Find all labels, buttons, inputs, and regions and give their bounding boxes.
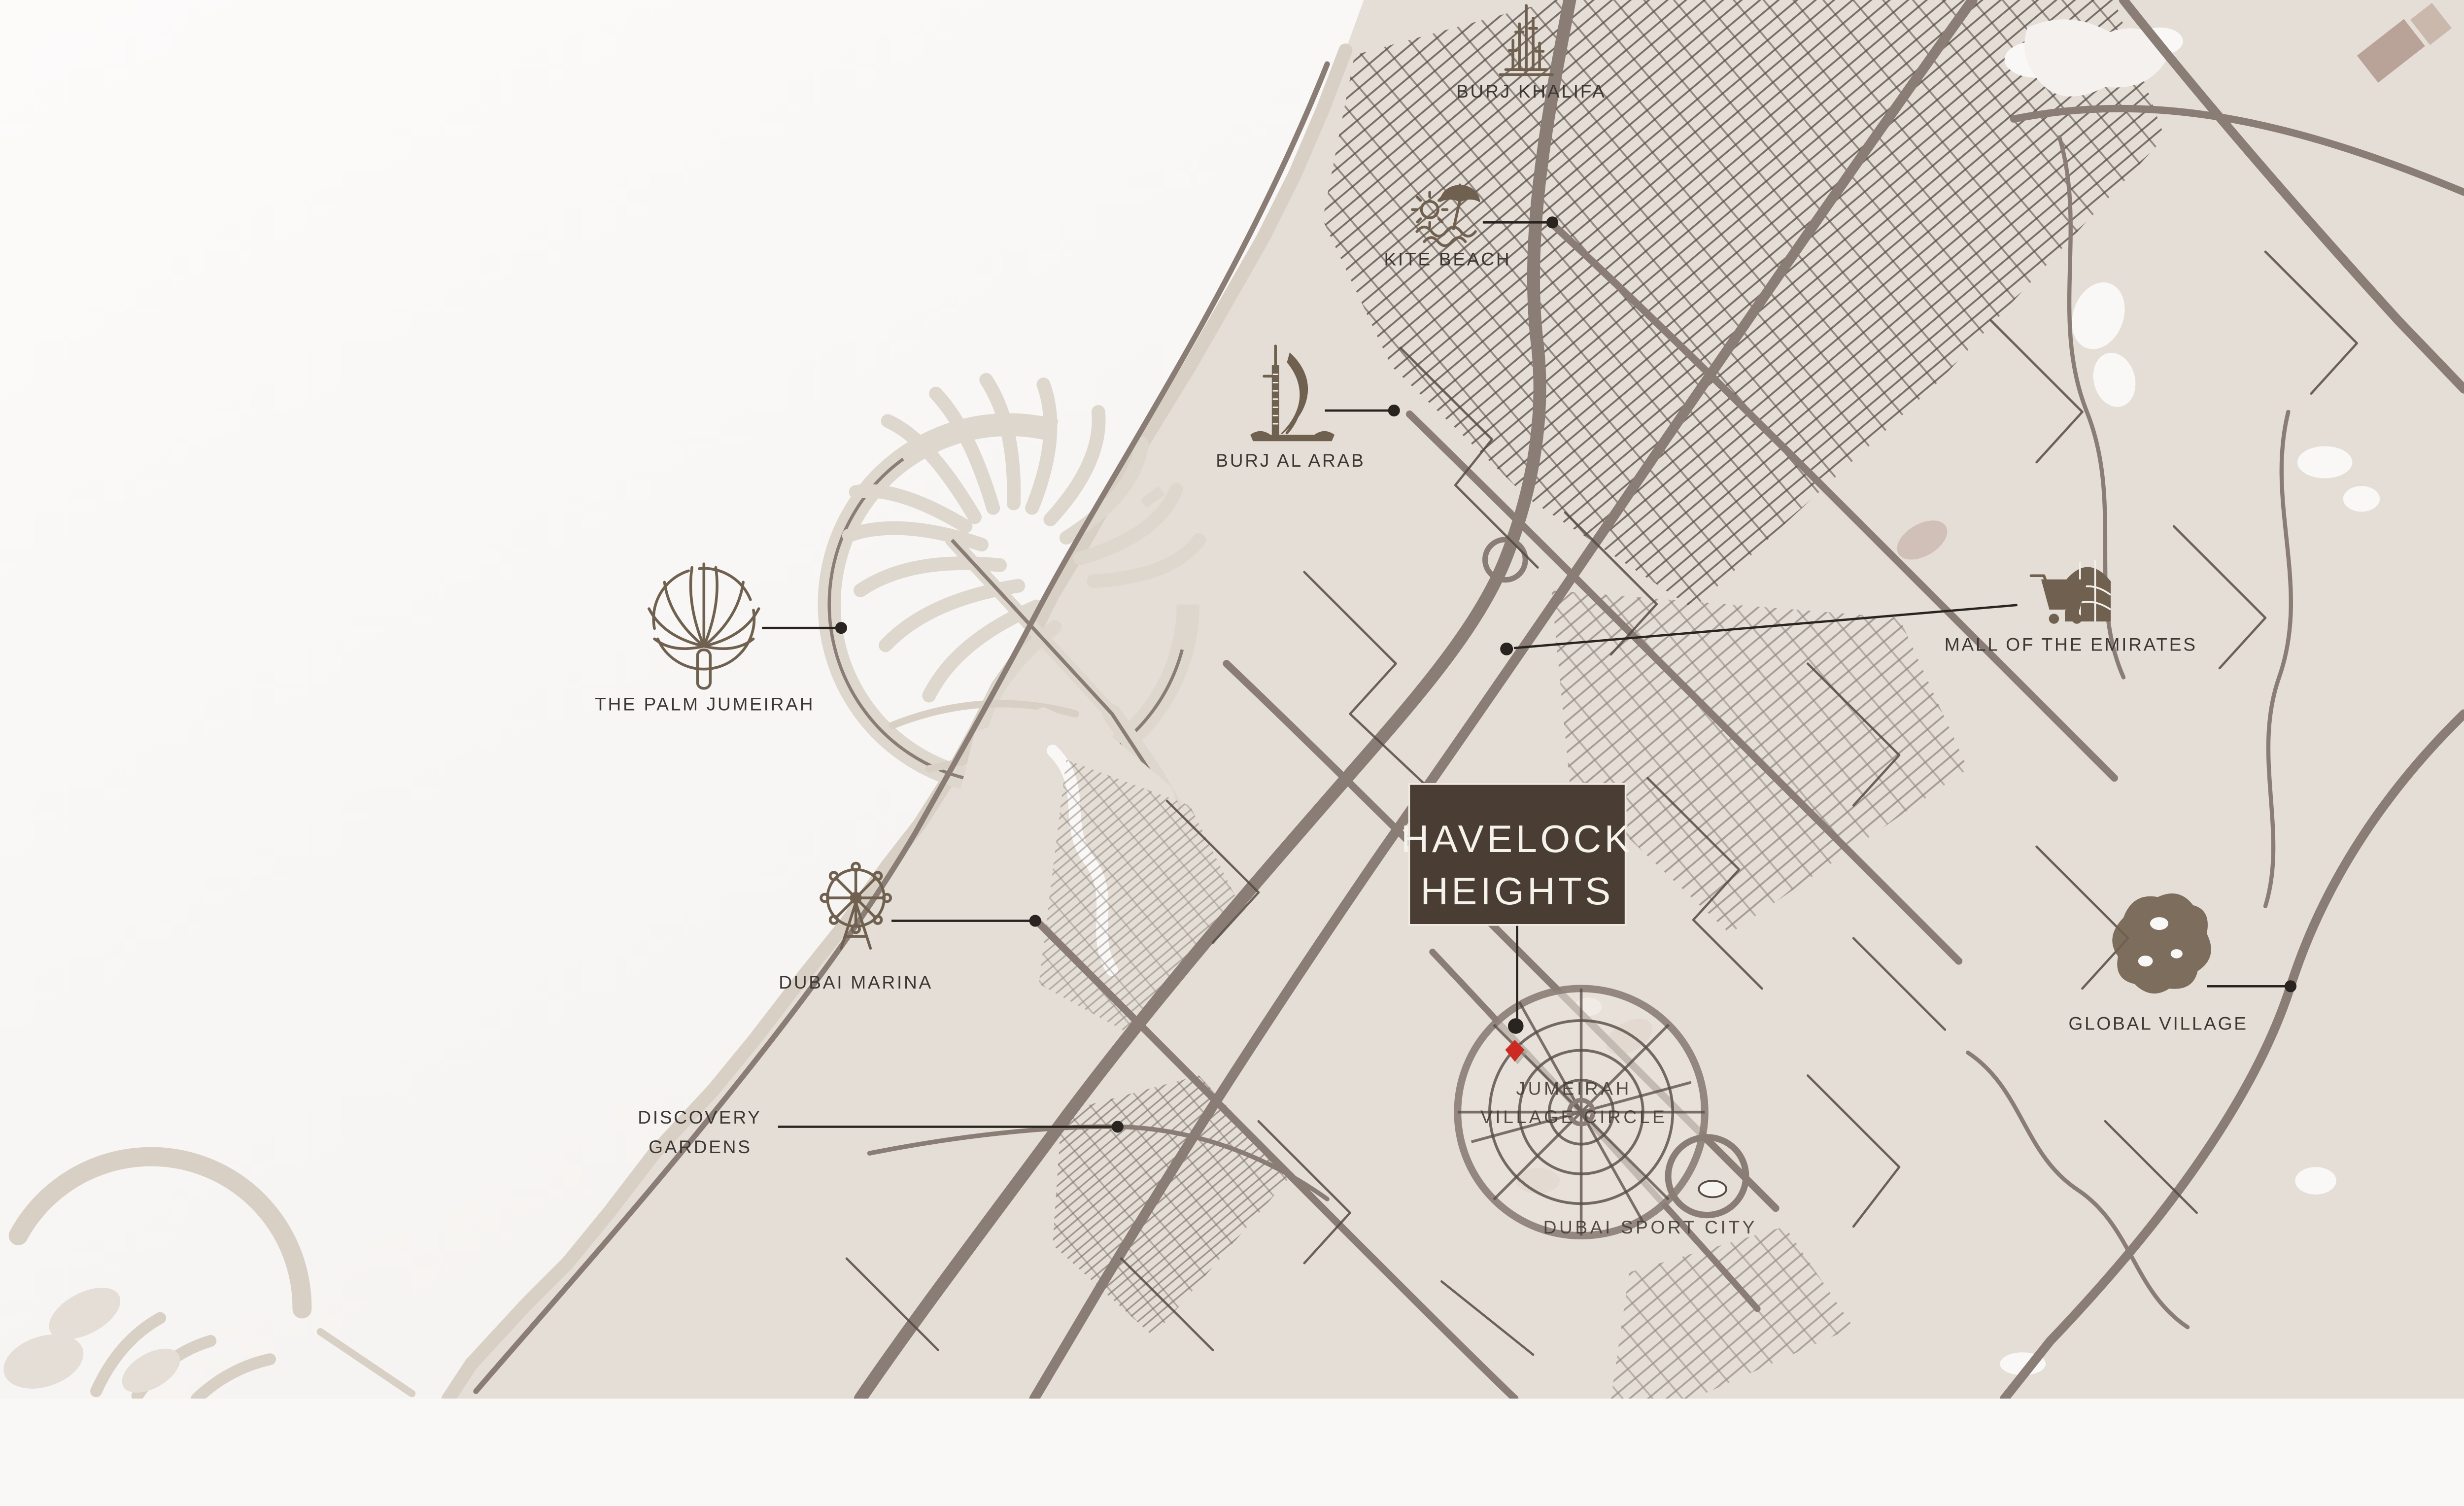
project-name-line2: HEIGHTS [1420, 869, 1613, 913]
kite-beach-label: KITE BEACH [1384, 249, 1511, 270]
project-name-line1: HAVELOCK [1401, 817, 1633, 860]
mall-map-dot [1500, 643, 1513, 655]
burj-al-arab-map-dot [1388, 405, 1400, 416]
burj-khalifa-label: BURJ KHALIFA [1456, 81, 1607, 102]
map-svg: BURJ KHALIFA KITE BEACH [0, 0, 2464, 1399]
dubai-marina-label: DUBAI MARINA [779, 972, 933, 993]
discovery-gardens-map-dot [1112, 1121, 1124, 1132]
jvc-label-line1: JUMEIRAH [1516, 1078, 1632, 1098]
palm-map-dot [835, 622, 847, 634]
the-palm-jumeirah-label: THE PALM JUMEIRAH [595, 693, 815, 714]
global-village-map-dot [2285, 980, 2296, 992]
mall-of-the-emirates-label: MALL OF THE EMIRATES [1945, 634, 2197, 655]
burj-al-arab-label: BURJ AL ARAB [1216, 450, 1365, 471]
kite-beach-map-dot [1546, 216, 1558, 228]
dubai-landmarks-map: BURJ KHALIFA KITE BEACH [0, 0, 2464, 1399]
jvc-label-line2: VILLAGE CIRCLE [1480, 1106, 1667, 1127]
discovery-gardens-label-line2: GARDENS [649, 1136, 752, 1157]
global-village-label: GLOBAL VILLAGE [2068, 1013, 2248, 1034]
dubai-sport-city-label: DUBAI SPORT CITY [1543, 1217, 1757, 1237]
discovery-gardens-label-line1: DISCOVERY [638, 1107, 761, 1128]
project-map-dot [1508, 1018, 1524, 1034]
dubai-marina-map-dot [1029, 915, 1041, 926]
